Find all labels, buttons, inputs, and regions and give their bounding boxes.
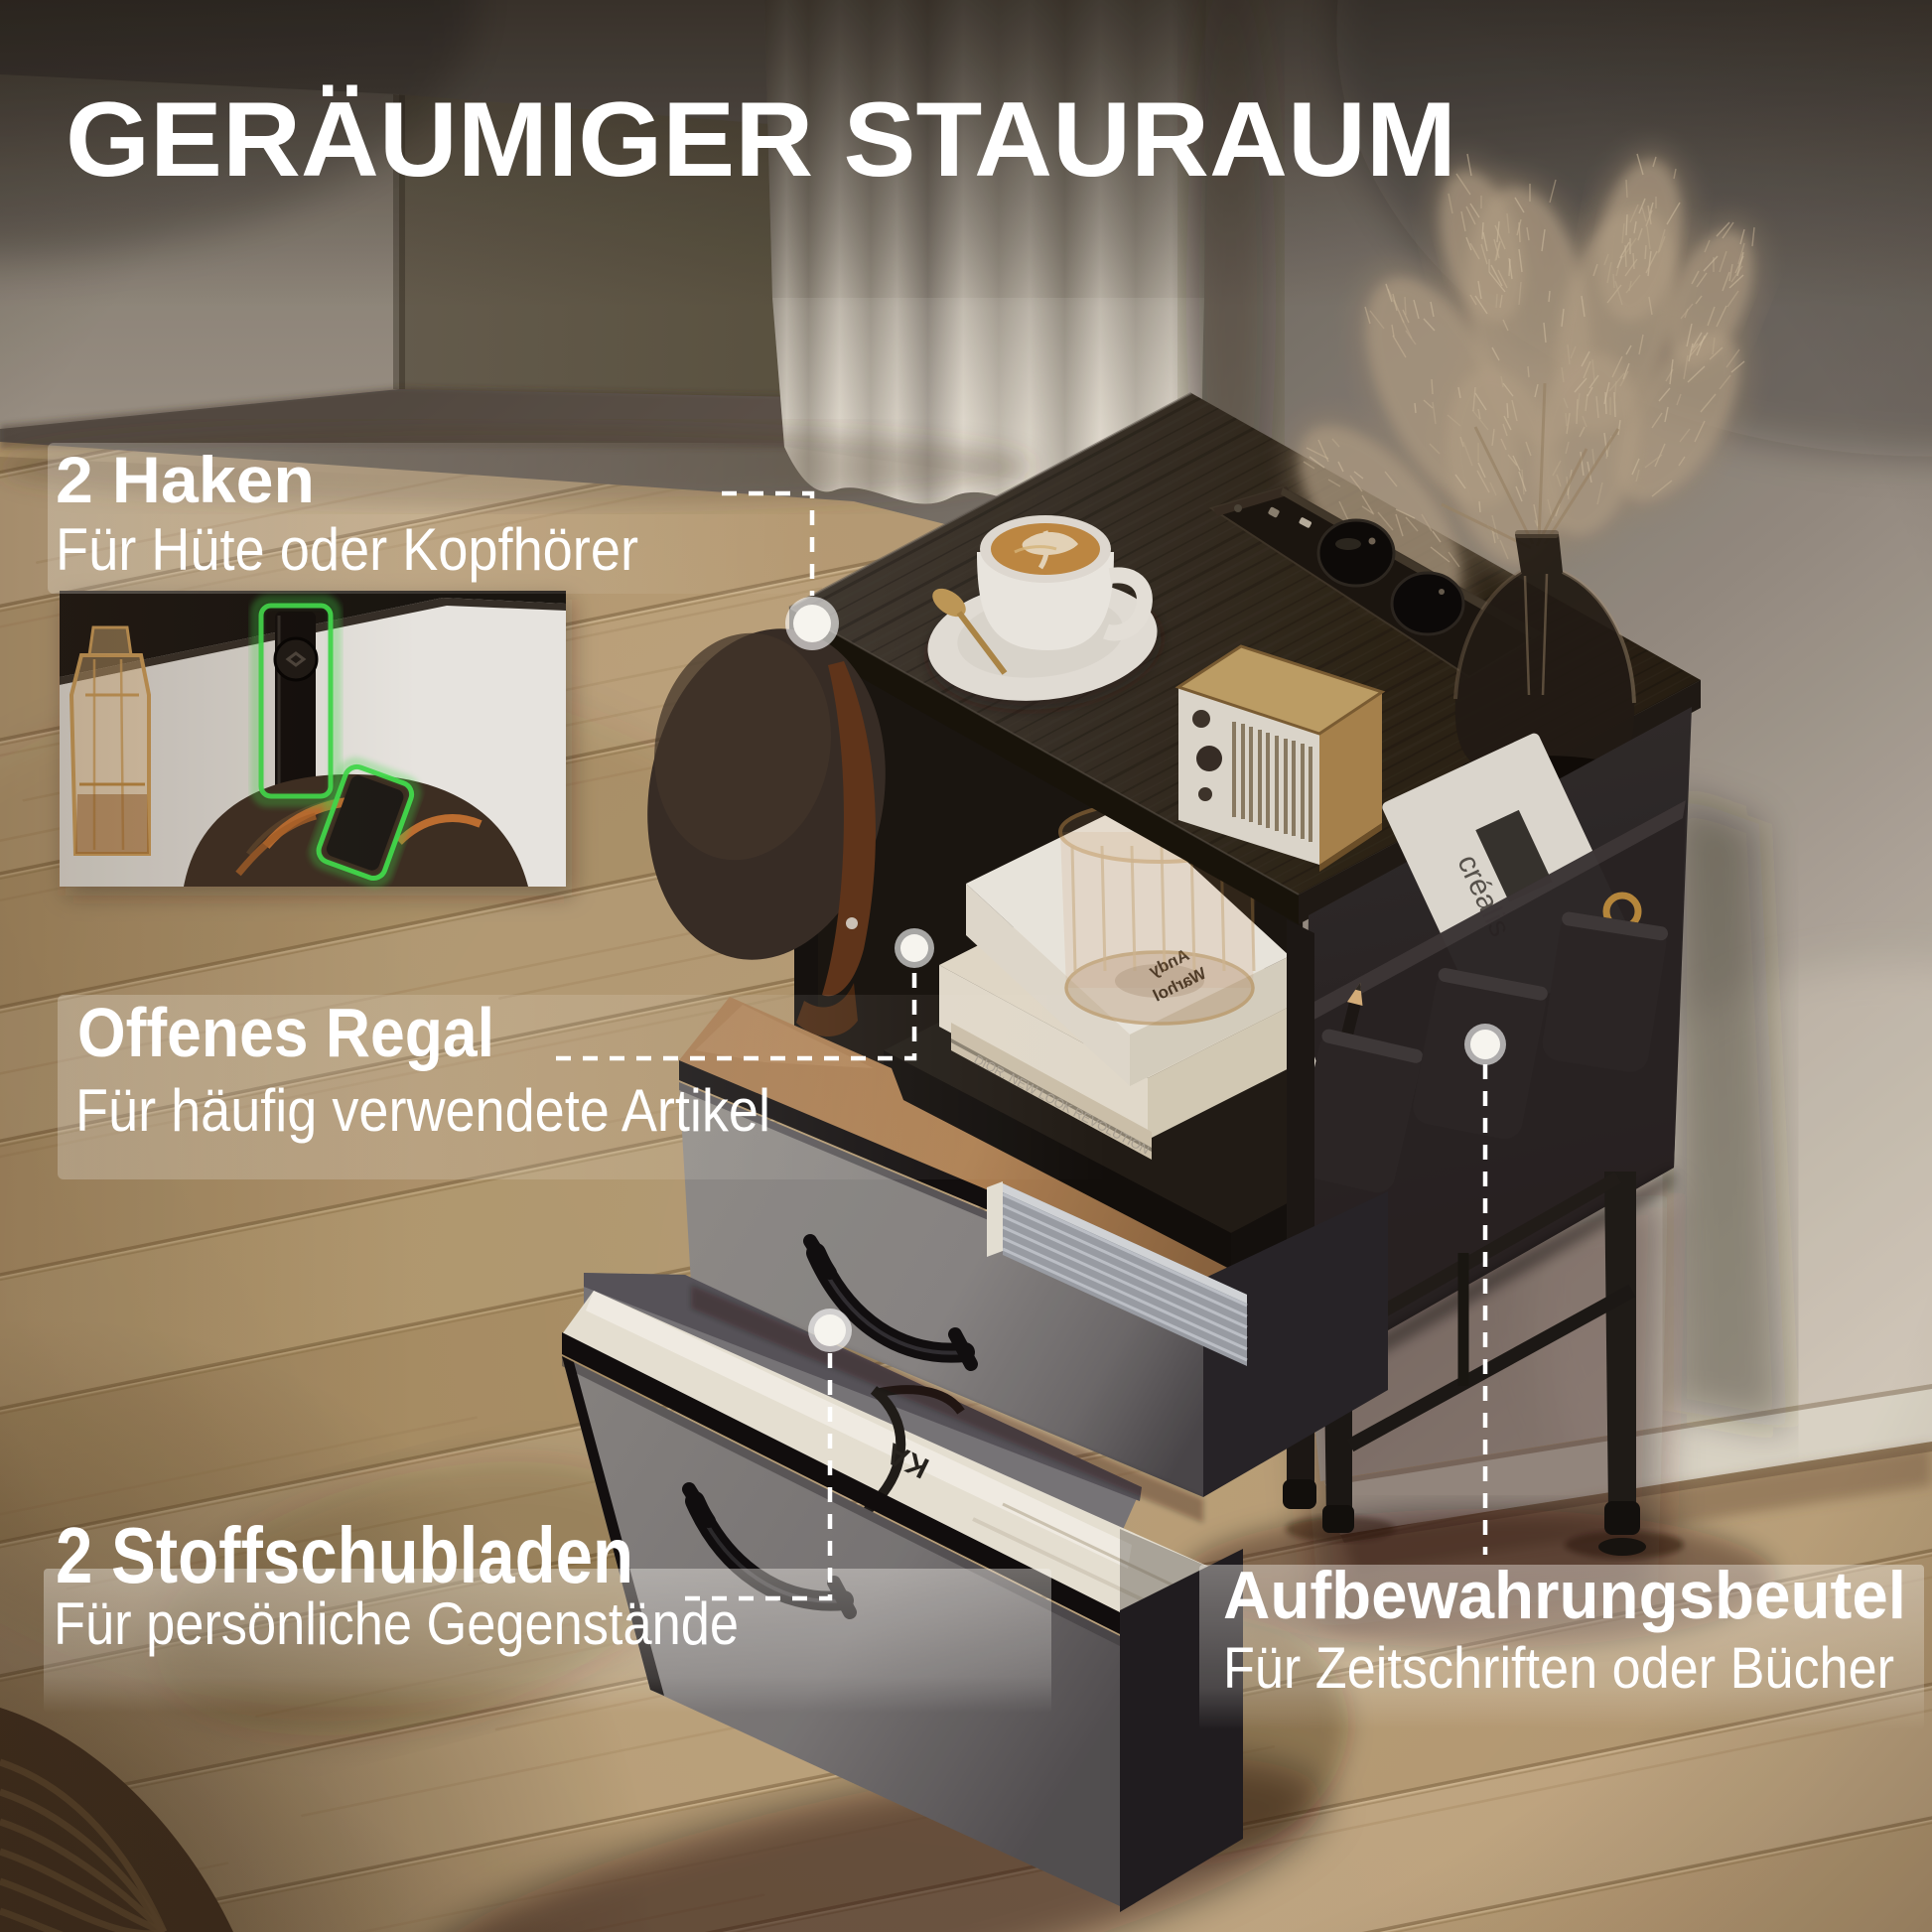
svg-text:Offenes Regal: Offenes Regal [77, 994, 494, 1071]
svg-text:GERÄUMIGER STAURAUM: GERÄUMIGER STAURAUM [66, 79, 1456, 199]
svg-text:Aufbewahrungsbeutel: Aufbewahrungsbeutel [1223, 1558, 1906, 1633]
svg-text:2 Haken: 2 Haken [56, 443, 315, 516]
svg-text:Für häufig verwendete Artikel: Für häufig verwendete Artikel [75, 1077, 770, 1144]
svg-text:Für persönliche Gegenstände: Für persönliche Gegenstände [54, 1590, 739, 1657]
svg-text:2 Stoffschubladen: 2 Stoffschubladen [56, 1511, 633, 1599]
svg-text:Für Hüte oder Kopfhörer: Für Hüte oder Kopfhörer [56, 516, 638, 583]
svg-text:Für Zeitschriften oder Bücher: Für Zeitschriften oder Bücher [1223, 1636, 1894, 1701]
